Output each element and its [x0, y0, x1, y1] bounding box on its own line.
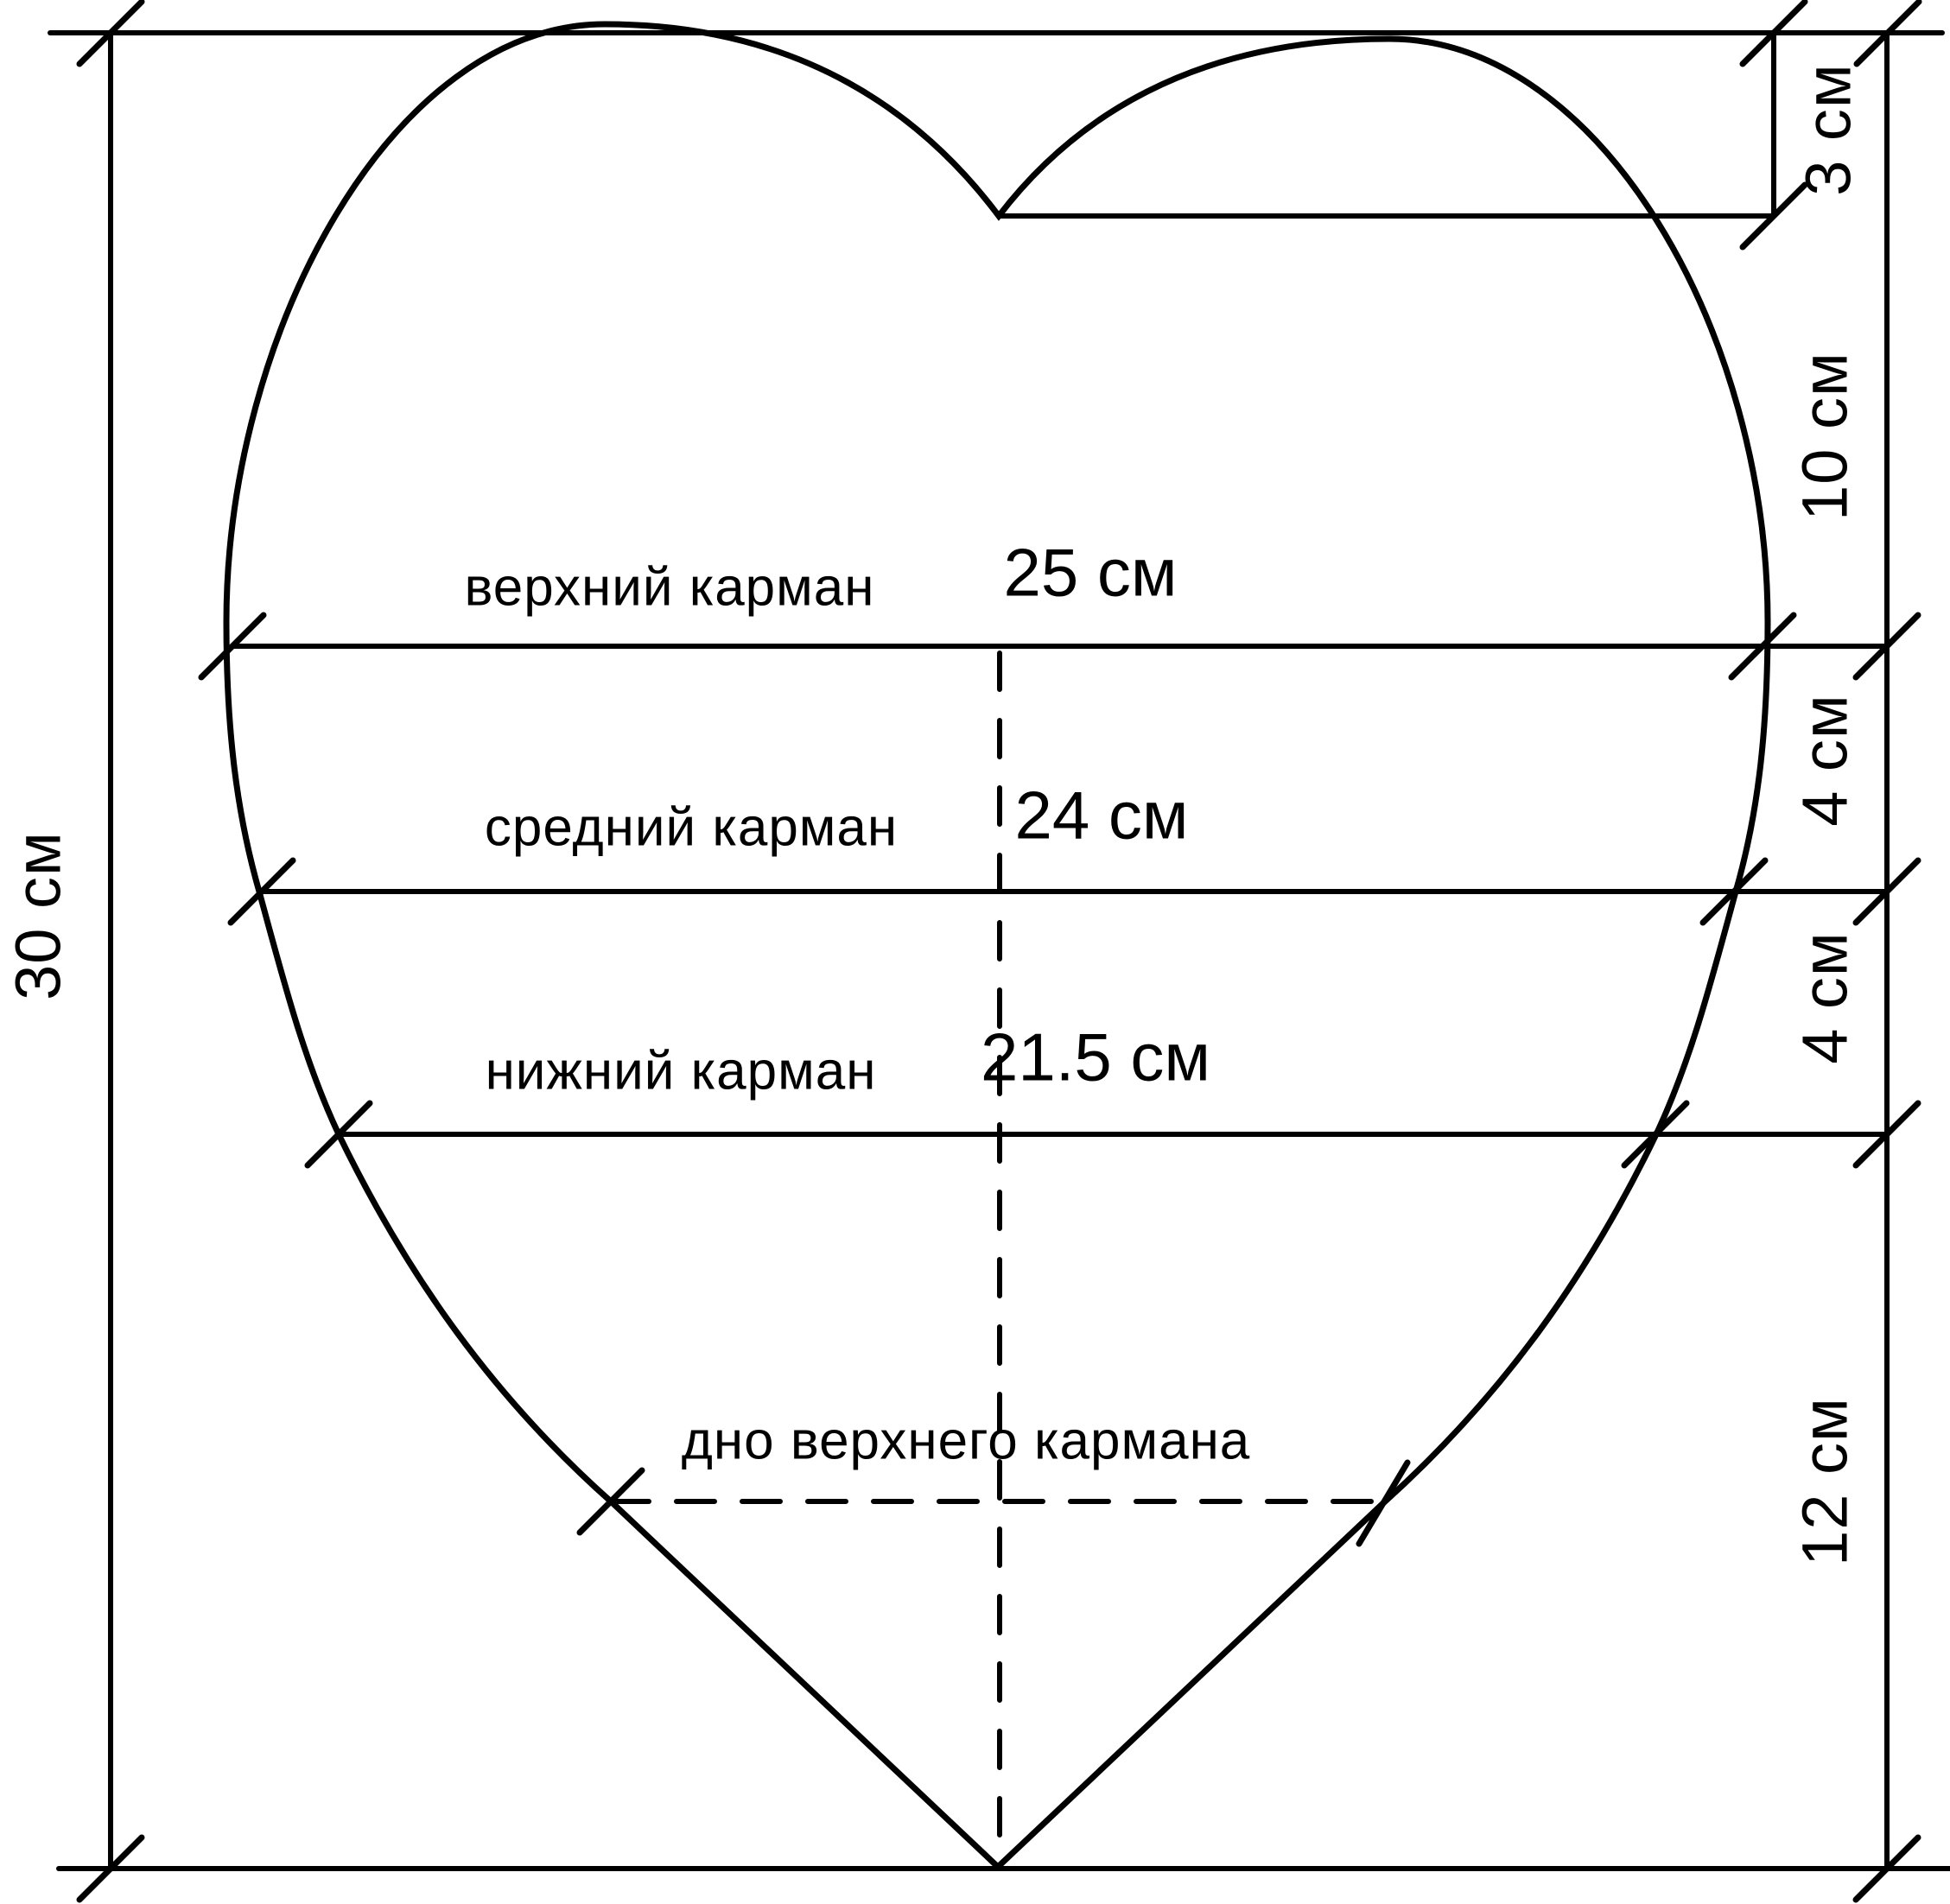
right-dimension-10cm: 10 см: [1788, 352, 1862, 521]
upper-pocket-label: верхний карман: [464, 557, 874, 619]
right-dimension-4cm-lower: 4 см: [1788, 931, 1862, 1064]
right-dimension-4cm-upper: 4 см: [1788, 694, 1862, 827]
middle-pocket-label: средний карман: [485, 797, 898, 859]
upper-pocket-width: 25 см: [1003, 534, 1177, 612]
pattern-diagram: верхний карман 25 см средний карман 24 с…: [0, 0, 1950, 1904]
lower-pocket-width: 21.5 см: [981, 1019, 1210, 1097]
middle-pocket-width: 24 см: [1014, 777, 1188, 855]
total-height-dimension: 30 см: [2, 831, 75, 1000]
right-dimension-3cm: 3 см: [1792, 63, 1865, 196]
upper-pocket-bottom-annotation: дно верхнего кармана: [682, 1411, 1251, 1472]
lower-pocket-label: нижний карман: [486, 1041, 877, 1102]
diagram-linework: [0, 0, 1950, 1904]
right-dimension-12cm: 12 см: [1788, 1397, 1862, 1566]
